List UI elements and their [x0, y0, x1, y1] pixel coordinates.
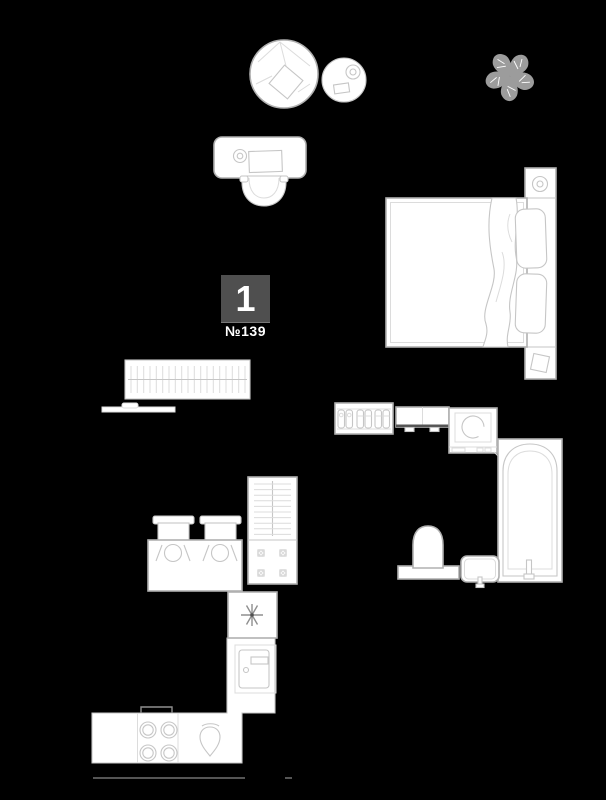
pillow [515, 273, 547, 333]
unit-number-badge[interactable]: 1 [221, 275, 270, 323]
floor-plan-viewport: 1 №139 [0, 0, 606, 800]
desk [214, 137, 306, 178]
kitchen-counter [92, 638, 275, 763]
unit-number: 1 [235, 281, 255, 317]
beanbag-chair [250, 40, 318, 108]
dining-table [148, 540, 242, 591]
shoe-rack [335, 403, 393, 434]
refrigerator [228, 592, 277, 638]
wall-line [93, 777, 292, 779]
laptop-icon [249, 150, 283, 172]
floor-plan [0, 0, 606, 800]
toilet [398, 526, 459, 579]
side-table [322, 58, 366, 102]
desk-chair [240, 176, 288, 206]
plant-icon [483, 52, 536, 104]
bathtub [498, 439, 562, 582]
shoes-icon [338, 410, 390, 428]
wall-ledge [102, 403, 175, 412]
bathroom-sink [461, 556, 499, 588]
double-bed [386, 168, 556, 379]
washing-machine [449, 408, 501, 459]
drying-rack [248, 477, 297, 584]
wall-cabinet [396, 407, 449, 432]
dining-chair [153, 516, 194, 541]
pillow [515, 208, 547, 268]
book-icon [531, 354, 550, 373]
radiator [125, 360, 250, 399]
apartment-number: №139 [215, 322, 276, 340]
dining-chair [200, 516, 241, 541]
